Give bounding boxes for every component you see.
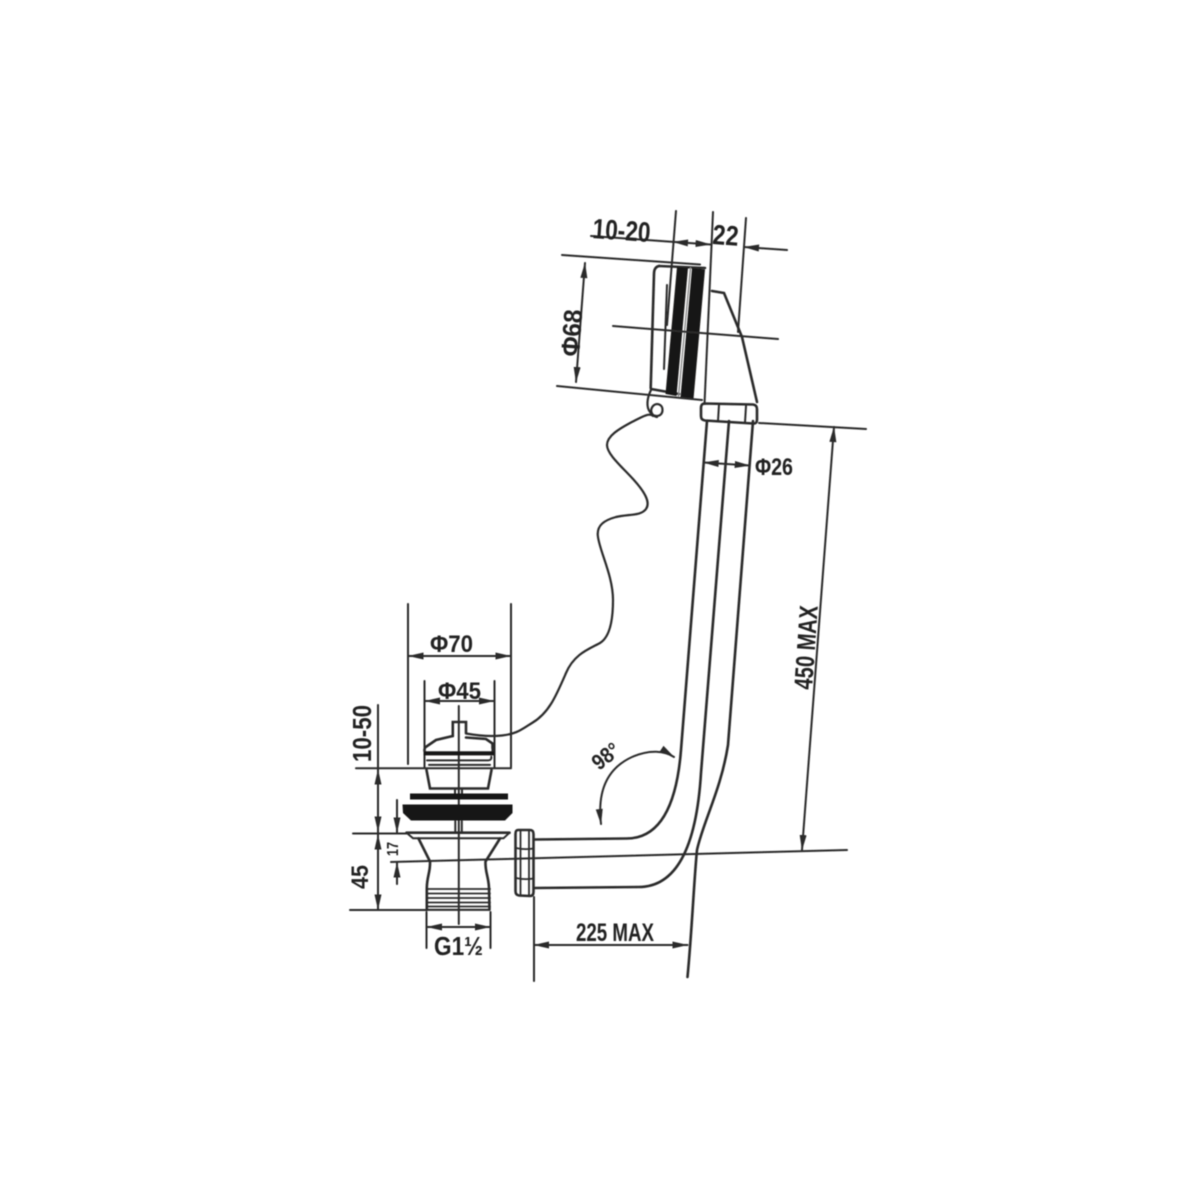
svg-text:Φ26: Φ26 (755, 454, 793, 481)
svg-text:10-20: 10-20 (592, 213, 652, 248)
svg-text:Φ68: Φ68 (555, 308, 588, 357)
svg-text:22: 22 (712, 219, 740, 252)
svg-text:17: 17 (385, 842, 402, 856)
svg-text:98°: 98° (587, 737, 625, 775)
svg-text:Φ45: Φ45 (438, 678, 481, 705)
svg-text:450 MAX: 450 MAX (788, 604, 824, 690)
svg-text:Φ70: Φ70 (430, 631, 473, 658)
svg-text:45: 45 (347, 865, 374, 889)
svg-text:225 MAX: 225 MAX (576, 919, 654, 947)
svg-text:10-50: 10-50 (347, 705, 377, 762)
svg-text:G1½: G1½ (434, 931, 483, 961)
